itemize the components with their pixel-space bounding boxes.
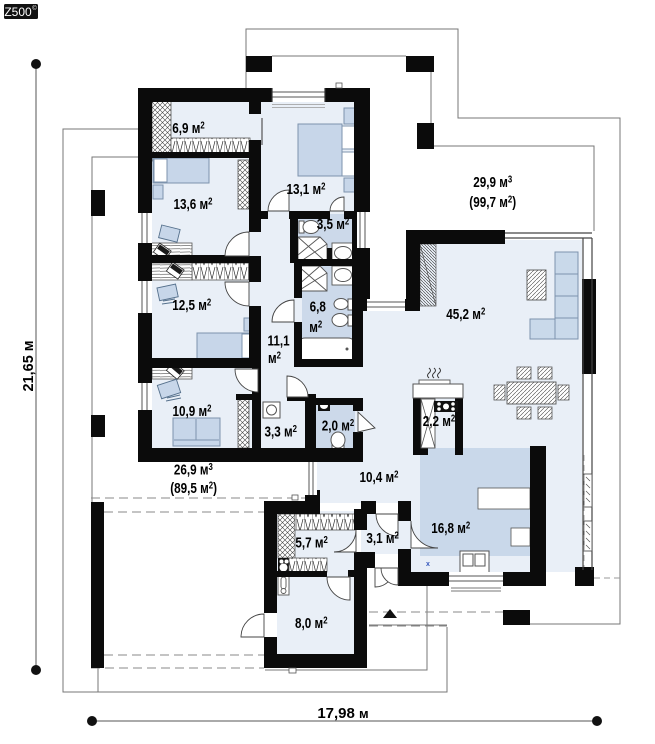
svg-text:6,8: 6,8 — [310, 298, 327, 315]
svg-text:10,4 м2: 10,4 м2 — [360, 469, 399, 486]
svg-text:21,65 м: 21,65 м — [21, 340, 37, 391]
svg-text:3,3 м2: 3,3 м2 — [264, 423, 296, 440]
svg-text:11,1: 11,1 — [268, 332, 291, 349]
svg-text:x: x — [426, 561, 430, 568]
svg-text:6,9 м2: 6,9 м2 — [172, 120, 204, 137]
svg-text:45,2 м2: 45,2 м2 — [446, 306, 485, 323]
svg-text:Z500: Z500 — [4, 5, 32, 19]
svg-text:5,7 м2: 5,7 м2 — [295, 534, 327, 551]
svg-text:3,5 м2: 3,5 м2 — [317, 216, 349, 233]
svg-text:©: © — [32, 5, 37, 12]
svg-text:17,98 м: 17,98 м — [317, 705, 368, 722]
svg-text:2,2 м2: 2,2 м2 — [423, 413, 455, 430]
svg-text:26,9 м3: 26,9 м3 — [174, 461, 213, 478]
svg-text:10,9 м2: 10,9 м2 — [173, 403, 212, 420]
svg-text:13,1 м2: 13,1 м2 — [287, 181, 326, 198]
svg-text:12,5 м2: 12,5 м2 — [172, 297, 211, 314]
svg-text:13,6 м2: 13,6 м2 — [174, 196, 213, 213]
svg-text:2,0 м2: 2,0 м2 — [322, 417, 354, 434]
svg-text:8,0 м2: 8,0 м2 — [295, 614, 327, 631]
svg-text:3,1 м2: 3,1 м2 — [366, 529, 398, 546]
svg-text:29,9 м3: 29,9 м3 — [473, 174, 512, 191]
svg-text:16,8 м2: 16,8 м2 — [431, 520, 470, 537]
